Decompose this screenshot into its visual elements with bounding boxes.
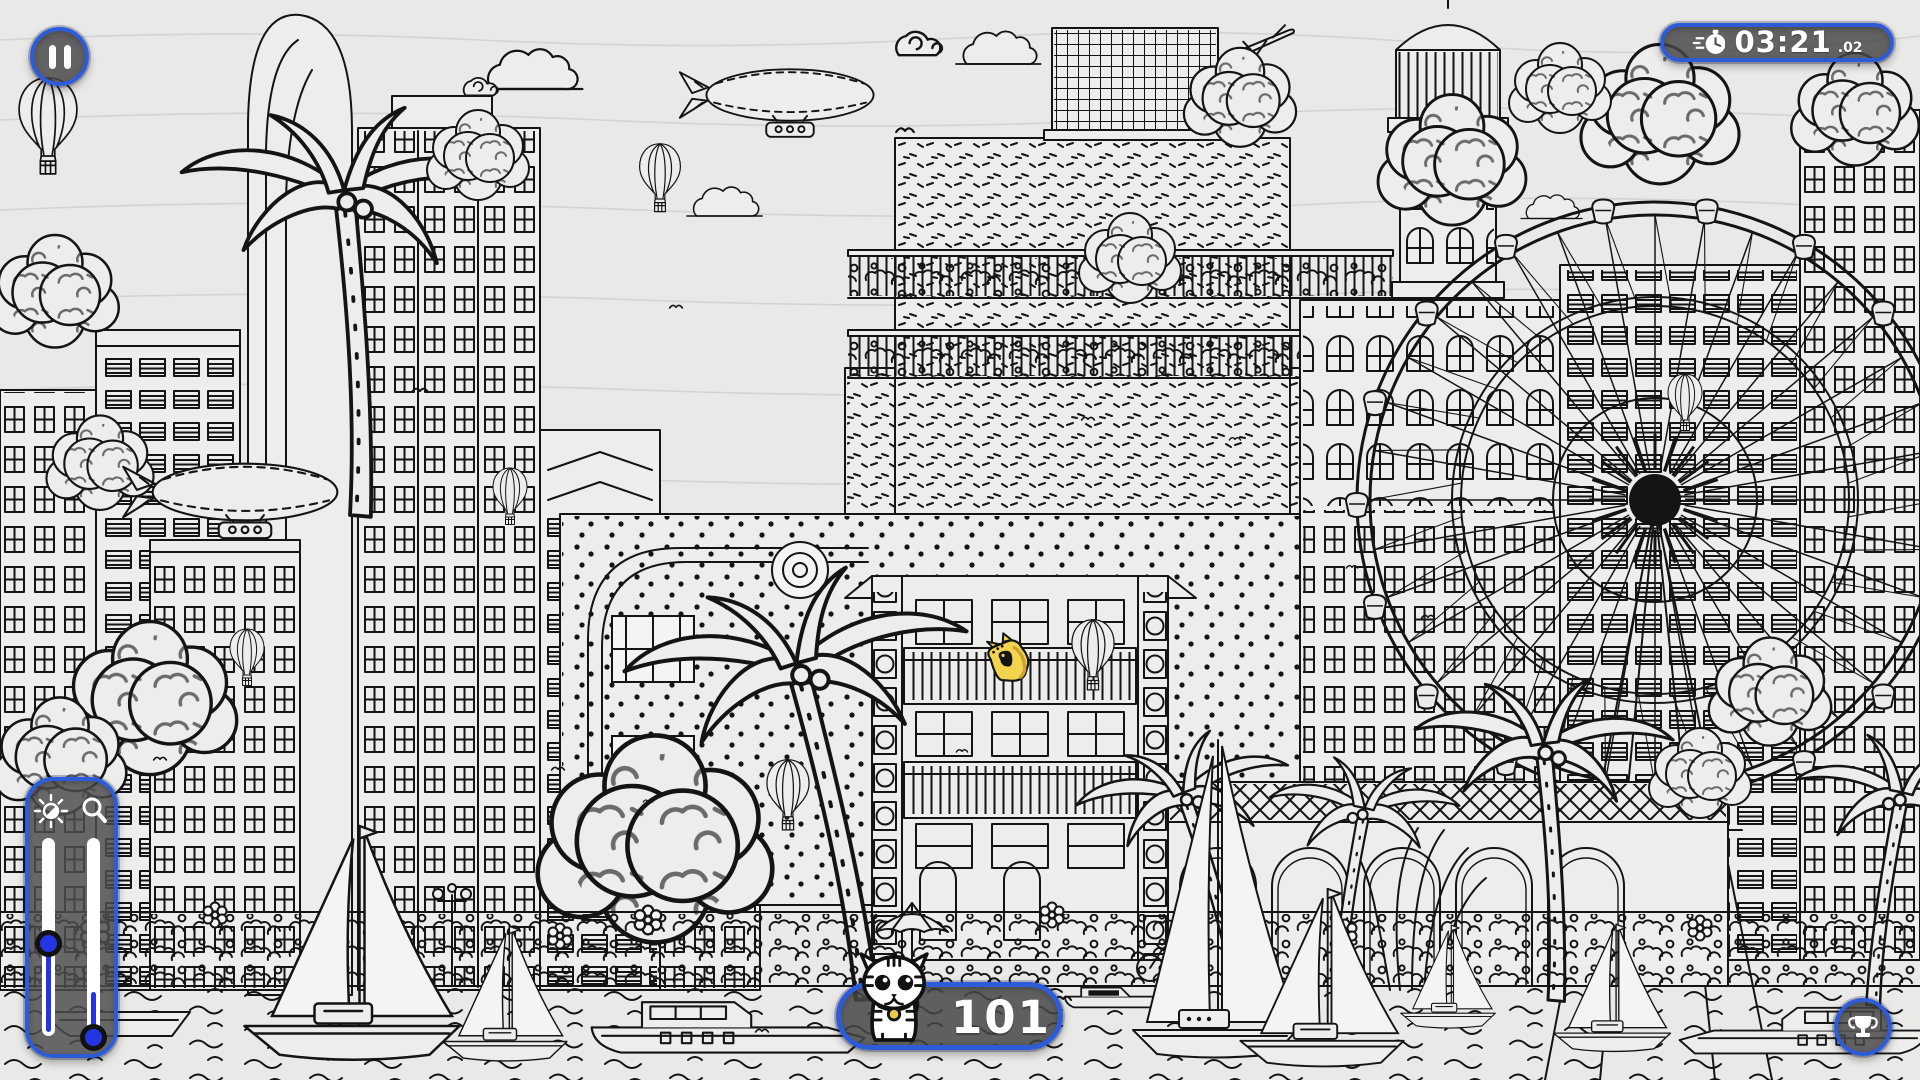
stopwatch-icon (1691, 27, 1725, 59)
zoom-slider[interactable] (87, 838, 100, 1036)
scene-illustration (0, 0, 1920, 1080)
timer-display: 03:21 .02 (1660, 23, 1894, 62)
pause-button[interactable] (30, 27, 89, 86)
zoom-slider-knob[interactable] (80, 1024, 107, 1051)
found-counter: 101 (836, 982, 1063, 1050)
trophy-button[interactable] (1834, 998, 1892, 1056)
brightness-slider[interactable] (42, 838, 55, 1036)
sun-icon (33, 793, 69, 829)
adjust-panel (25, 777, 118, 1058)
found-count: 101 (951, 991, 1051, 1044)
timer-centiseconds: .02 (1838, 40, 1863, 56)
brightness-slider-knob[interactable] (35, 930, 62, 957)
cat-icon (851, 951, 937, 1043)
magnifier-icon (78, 793, 110, 829)
trophy-icon (1848, 1012, 1878, 1042)
pause-icon (49, 45, 71, 69)
timer-time: 03:21 (1734, 28, 1831, 57)
